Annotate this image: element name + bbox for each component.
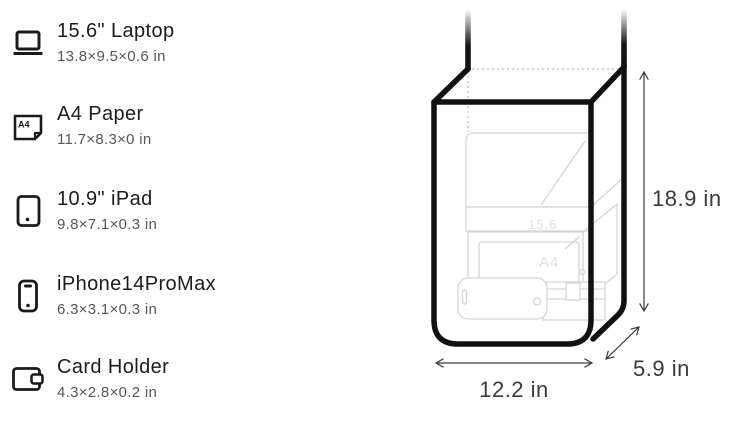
list-item-laptop: 15.6" Laptop 13.8×9.5×0.6 in	[10, 20, 175, 65]
size-comparison-infographic: 15.6" Laptop 13.8×9.5×0.6 in A4 A4 Paper…	[0, 0, 750, 426]
list-item-ipad: 10.9" iPad 9.8×7.1×0.3 in	[10, 188, 157, 233]
list-item-card-holder: Card Holder 4.3×2.8×0.2 in	[10, 356, 169, 401]
item-title: iPhone14ProMax	[57, 273, 216, 296]
ghost-iphone	[458, 278, 547, 319]
item-title: 10.9" iPad	[57, 188, 157, 211]
item-dimensions: 11.7×8.3×0 in	[57, 131, 152, 148]
bag-height-label: 18.9 in	[652, 186, 722, 211]
bag-straps	[465, 9, 627, 70]
a4-icon-label: A4	[18, 119, 30, 129]
bag-width-label: 12.2 in	[479, 377, 549, 402]
depth-arrow	[606, 327, 639, 359]
item-dimensions: 13.8×9.5×0.6 in	[57, 48, 175, 65]
iphone-icon	[10, 278, 46, 314]
item-title: A4 Paper	[57, 103, 152, 126]
list-item-iphone: iPhone14ProMax 6.3×3.1×0.3 in	[10, 273, 216, 318]
ipad-icon	[10, 193, 46, 229]
ghost-a4-label: A4	[539, 254, 559, 271]
ghost-laptop-label: 15.6	[528, 217, 557, 232]
a4-paper-icon: A4	[10, 108, 46, 144]
item-title: 15.6" Laptop	[57, 20, 175, 43]
item-dimensions: 6.3×3.1×0.3 in	[57, 301, 216, 318]
item-dimensions: 4.3×2.8×0.2 in	[57, 384, 169, 401]
list-item-a4-paper: A4 A4 Paper 11.7×8.3×0 in	[10, 103, 152, 148]
item-title: Card Holder	[57, 356, 169, 379]
item-dimensions: 9.8×7.1×0.3 in	[57, 216, 157, 233]
bag-dimension-diagram: 15.6 A4	[410, 0, 750, 426]
bag-depth-label: 5.9 in	[633, 356, 690, 381]
laptop-icon	[10, 25, 46, 61]
bag-contents-ghost: 15.6 A4	[458, 133, 623, 320]
ghost-laptop	[466, 133, 591, 207]
wallet-icon	[10, 361, 46, 397]
